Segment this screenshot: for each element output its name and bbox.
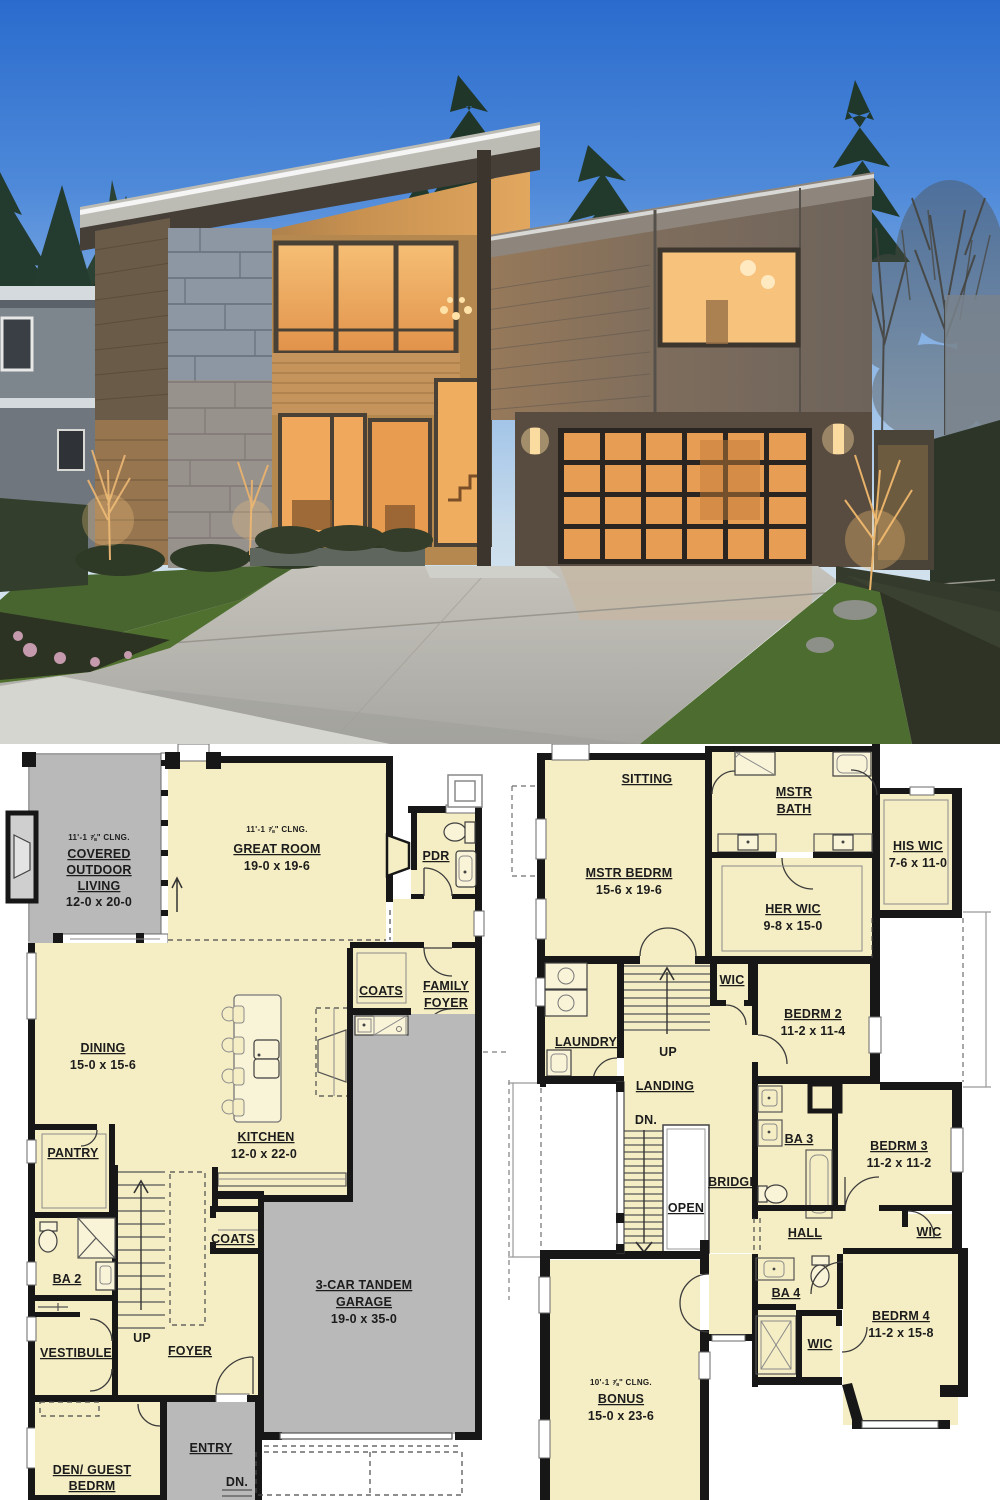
svg-text:WIC: WIC [720, 973, 745, 987]
svg-text:MSTR: MSTR [776, 785, 812, 799]
svg-text:GARAGE: GARAGE [336, 1295, 392, 1309]
svg-text:19-0 x 19-6: 19-0 x 19-6 [244, 859, 310, 873]
svg-text:LAUNDRY: LAUNDRY [555, 1035, 618, 1049]
svg-text:BONUS: BONUS [598, 1392, 644, 1406]
svg-text:LANDING: LANDING [636, 1079, 694, 1093]
svg-text:GREAT ROOM: GREAT ROOM [233, 842, 320, 856]
svg-text:ENTRY: ENTRY [190, 1441, 233, 1455]
svg-text:11-2 x 11-4: 11-2 x 11-4 [781, 1024, 846, 1038]
svg-text:11'-1 ⅞" CLNG.: 11'-1 ⅞" CLNG. [68, 833, 129, 842]
svg-text:BEDRM 3: BEDRM 3 [870, 1139, 928, 1153]
svg-text:BEDRM 2: BEDRM 2 [784, 1007, 842, 1021]
svg-text:OPEN: OPEN [668, 1201, 704, 1215]
svg-text:OUTDOOR: OUTDOOR [66, 863, 131, 877]
svg-text:15-0 x 23-6: 15-0 x 23-6 [588, 1409, 654, 1423]
svg-text:10'-1 ⅞" CLNG.: 10'-1 ⅞" CLNG. [590, 1378, 652, 1387]
svg-text:FOYER: FOYER [424, 996, 468, 1010]
svg-text:12-0 x 22-0: 12-0 x 22-0 [231, 1147, 297, 1161]
svg-text:HER WIC: HER WIC [765, 902, 821, 916]
svg-text:WIC: WIC [917, 1225, 942, 1239]
svg-text:11'-1 ⅞" CLNG.: 11'-1 ⅞" CLNG. [246, 825, 307, 834]
svg-text:VESTIBULE: VESTIBULE [40, 1346, 112, 1360]
svg-text:9-8 x 15-0: 9-8 x 15-0 [764, 919, 823, 933]
svg-text:11-2 x 15-8: 11-2 x 15-8 [868, 1326, 933, 1340]
svg-text:MSTR BEDRM: MSTR BEDRM [586, 866, 673, 880]
svg-text:PANTRY: PANTRY [47, 1146, 99, 1160]
svg-text:HIS WIC: HIS WIC [893, 839, 943, 853]
svg-text:DINING: DINING [81, 1041, 126, 1055]
svg-text:UP: UP [659, 1045, 677, 1059]
svg-text:BRIDGE: BRIDGE [708, 1175, 758, 1189]
svg-text:DEN/ GUEST: DEN/ GUEST [53, 1463, 132, 1477]
svg-text:BA 2: BA 2 [53, 1272, 82, 1286]
svg-text:3-CAR TANDEM: 3-CAR TANDEM [316, 1278, 413, 1292]
svg-text:DN.: DN. [635, 1113, 657, 1127]
svg-text:FAMILY: FAMILY [423, 979, 469, 993]
svg-text:7-6 x 11-0: 7-6 x 11-0 [889, 856, 947, 870]
svg-text:15-6 x 19-6: 15-6 x 19-6 [596, 883, 662, 897]
svg-text:19-0 x 35-0: 19-0 x 35-0 [331, 1312, 397, 1326]
svg-text:COVERED: COVERED [67, 847, 130, 861]
svg-text:KITCHEN: KITCHEN [238, 1130, 295, 1144]
svg-text:11-2 x 11-2: 11-2 x 11-2 [867, 1156, 932, 1170]
svg-text:BEDRM: BEDRM [69, 1479, 116, 1493]
svg-text:COATS: COATS [211, 1232, 255, 1246]
svg-text:15-0 x 15-6: 15-0 x 15-6 [70, 1058, 136, 1072]
svg-text:SITTING: SITTING [622, 772, 673, 786]
svg-text:HALL: HALL [788, 1226, 822, 1240]
svg-text:UP: UP [133, 1331, 151, 1345]
svg-text:LIVING: LIVING [78, 879, 121, 893]
svg-text:BATH: BATH [777, 802, 812, 816]
svg-text:FOYER: FOYER [168, 1344, 212, 1358]
svg-text:12-0 x 20-0: 12-0 x 20-0 [66, 895, 132, 909]
svg-text:BEDRM 4: BEDRM 4 [872, 1309, 930, 1323]
svg-text:BA 4: BA 4 [772, 1286, 801, 1300]
svg-text:PDR: PDR [423, 849, 450, 863]
svg-text:BA 3: BA 3 [785, 1132, 814, 1146]
svg-text:DN.: DN. [226, 1475, 248, 1489]
svg-text:WIC: WIC [808, 1337, 833, 1351]
svg-text:COATS: COATS [359, 984, 403, 998]
